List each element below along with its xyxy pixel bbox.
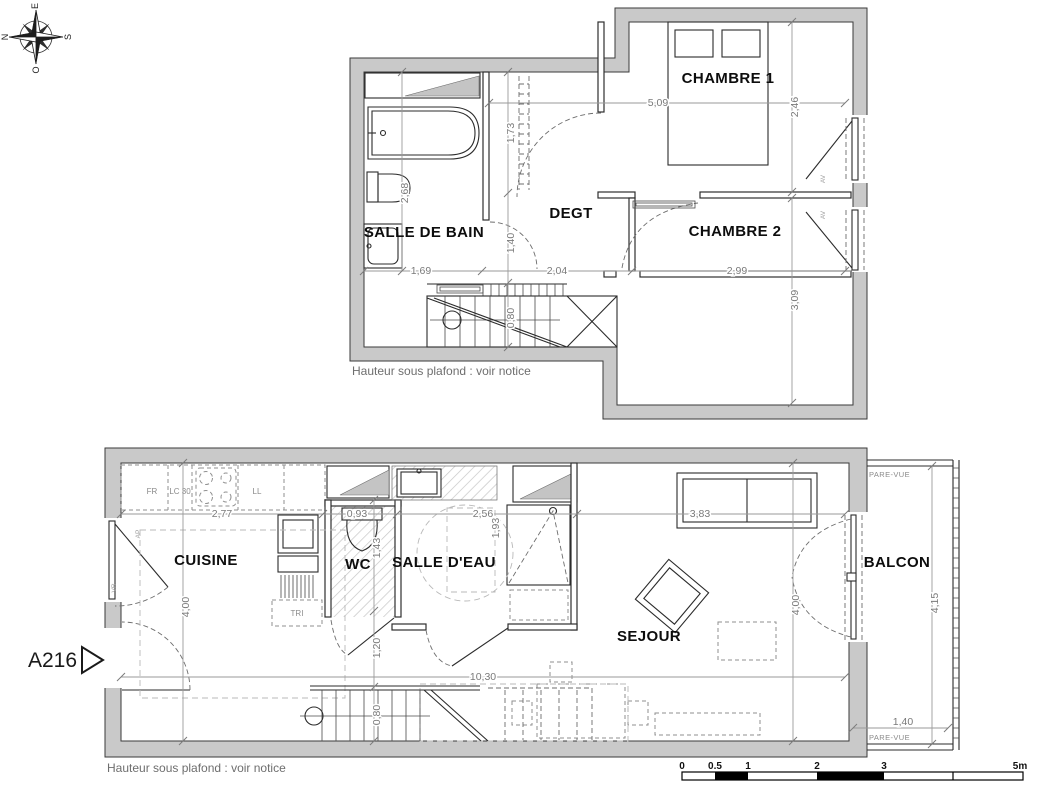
dim-kitchen-depth: 4,00 — [180, 597, 192, 618]
dishwasher-label: LC 30 — [169, 487, 191, 496]
dim-sdb-length: 2,68 — [399, 183, 411, 204]
dim-stair-run: 1,20 — [371, 638, 383, 659]
dim-degt-depth: 1,40 — [505, 233, 517, 254]
scale-bar: 0 0.5 1 2 3 5m — [679, 761, 1027, 780]
lower-floor-note: Hauteur sous plafond : voir notice — [107, 761, 286, 775]
dim-chambre1-width: 5,09 — [648, 97, 669, 109]
entrance-door — [122, 622, 190, 690]
chambre2-left-wall — [629, 198, 635, 271]
room-label-degt: DEGT — [549, 205, 592, 222]
room-label-balcon: BALCON — [864, 554, 931, 571]
kitchen-window-label-top: AP — [135, 530, 142, 539]
upper-floor-note: Hauteur sous plafond : voir notice — [352, 364, 531, 378]
tri-label: TRI — [291, 609, 304, 618]
dim-degt-width: 2,04 — [547, 265, 568, 277]
wc-room — [325, 500, 401, 655]
dining-zone — [420, 684, 628, 741]
sde-right-wall — [571, 463, 577, 630]
chambre1-door-arc — [517, 113, 601, 197]
kitchen-zone — [140, 530, 345, 698]
armchair — [635, 559, 708, 632]
dim-sde-depth: 1,93 — [490, 518, 502, 539]
room-label-chambre2: CHAMBRE 2 — [689, 223, 782, 240]
scale-2: 2 — [814, 761, 820, 772]
room-label-salle-deau: SALLE D'EAU — [392, 554, 496, 571]
stairs-upper — [427, 284, 617, 347]
wc-top-closet — [327, 466, 389, 498]
pare-vue-bottom-label: PARE-VUE — [869, 733, 910, 742]
chambre1-bottom-wall-right — [700, 192, 851, 198]
unit-label: A216 — [28, 649, 77, 672]
floorplan-drawing: E N S O AV AV — [0, 0, 1041, 800]
dim-chambre1-depth: 2,46 — [789, 97, 801, 118]
scale-1: 1 — [745, 761, 751, 772]
dim-chambre2-depth: 3,09 — [789, 290, 801, 311]
room-label-chambre1: CHAMBRE 1 — [682, 70, 775, 87]
pare-vue-top-label: PARE-VUE — [869, 470, 910, 479]
unit-marker: A216 — [28, 647, 103, 673]
balcony-door — [792, 515, 862, 640]
dim-stair-width-upper: 0,80 — [505, 308, 517, 329]
upper-window1 — [806, 118, 864, 180]
sde-closet — [513, 466, 577, 502]
room-label-wc: WC — [345, 556, 371, 573]
entrance-arrow-icon — [82, 647, 103, 673]
dim-closet-depth: 1,73 — [505, 123, 517, 144]
tv-bench — [655, 713, 760, 735]
dim-balcon-width: 1,40 — [893, 716, 914, 728]
coffee-table — [718, 622, 776, 660]
sdb-closet — [365, 73, 480, 98]
dim-chambre2-width: 2,99 — [727, 265, 748, 277]
compass-north-label: N — [0, 34, 10, 41]
compass-west-label: O — [31, 66, 41, 73]
stairs-lower — [300, 686, 592, 741]
dim-kitchen-run: 2,77 — [212, 508, 233, 520]
compass-south-label: S — [63, 34, 73, 40]
dim-wc-width: 0,93 — [347, 508, 368, 520]
dim-balcon-depth: 4,15 — [929, 593, 941, 614]
washer-label: LL — [253, 487, 262, 496]
room-label-sejour: SEJOUR — [617, 628, 681, 645]
scale-05: 0.5 — [708, 761, 722, 772]
chambre1-left-wall — [598, 22, 604, 112]
upper-window2 — [806, 210, 864, 270]
dim-stair-width-lower: 0,80 — [371, 705, 383, 726]
dim-total-width: 10,30 — [470, 671, 496, 683]
floorplan-page: E N S O AV AV — [0, 0, 1041, 800]
sdb-corridor-wall — [483, 72, 489, 220]
scale-0: 0 — [679, 761, 685, 772]
kitchen-window-label-bottom: VR — [111, 583, 118, 592]
lower-floor-plan: PARE-VUE PARE-VUE AP VR — [104, 448, 959, 775]
room-label-salle-de-bain: SALLE DE BAIN — [364, 224, 484, 241]
chambre2-cupboard — [633, 201, 695, 208]
room-label-cuisine: CUISINE — [174, 552, 238, 569]
chambre1-bottom-wall-left — [598, 192, 635, 198]
dim-sofa-width: 3,83 — [690, 508, 711, 520]
fridge-label: FR — [147, 487, 158, 496]
dim-sejour-depth: 4,00 — [790, 595, 802, 616]
upper-window2-label: AV — [820, 210, 827, 219]
bed — [668, 22, 768, 165]
upper-floor-plan: AV AV — [350, 8, 869, 419]
scale-3: 3 — [881, 761, 887, 772]
balcony-structure — [867, 460, 959, 750]
compass-rose: E N S O — [0, 3, 73, 74]
bathtub — [368, 107, 479, 159]
dim-wc-depth: 1,43 — [371, 538, 383, 559]
dim-sdb-width: 1,69 — [411, 265, 432, 277]
compass-east-label: E — [30, 3, 40, 9]
upper-outer-walls — [350, 8, 867, 419]
scale-5m: 5m — [1013, 761, 1028, 772]
upper-window1-label: AV — [820, 174, 827, 183]
shower — [507, 505, 570, 620]
